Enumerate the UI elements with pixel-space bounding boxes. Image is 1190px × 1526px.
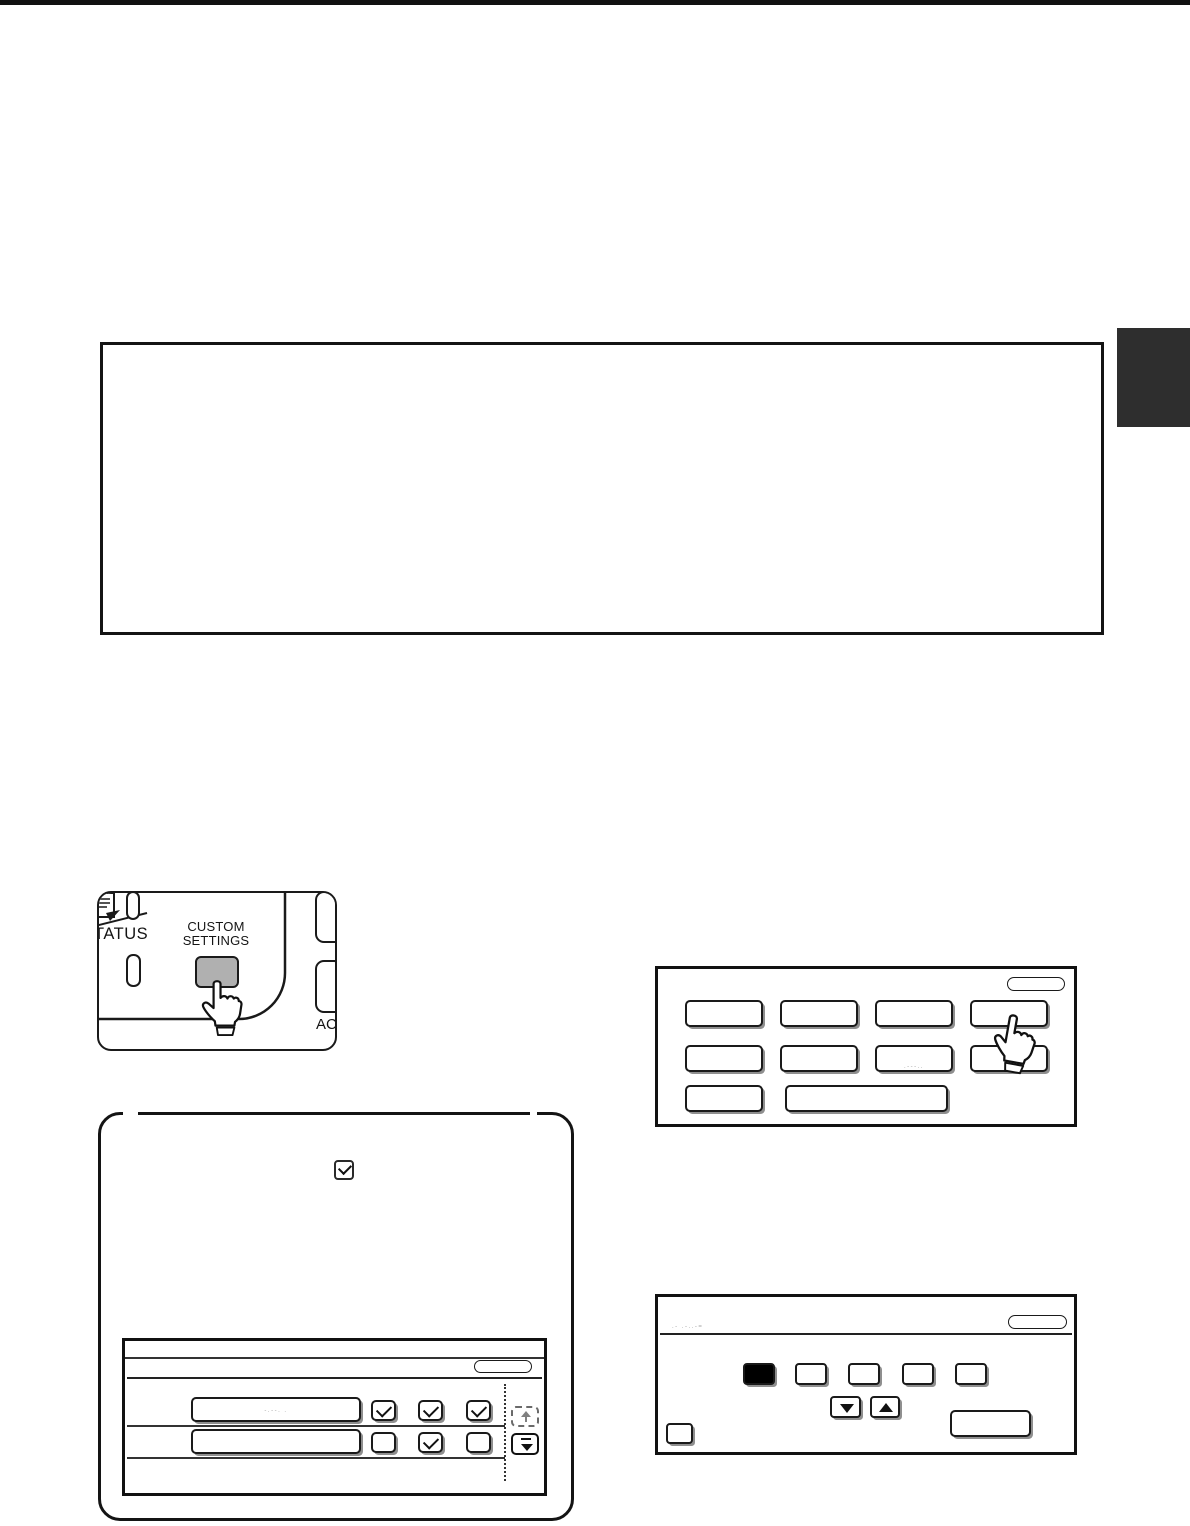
status-indicator-key bbox=[126, 954, 141, 987]
row2-checkbox-2 bbox=[418, 1432, 443, 1453]
menu-button-2 bbox=[780, 1000, 858, 1027]
down-arrow-icon bbox=[521, 1438, 531, 1440]
row2-checkbox-1 bbox=[371, 1432, 396, 1453]
panel-right-key-2 bbox=[315, 960, 337, 1013]
up-triangle-icon bbox=[879, 1403, 893, 1412]
control-panel-illustration: TATUS CUSTOM SETTINGS AC bbox=[97, 891, 337, 1051]
up-arrow-icon bbox=[525, 1417, 527, 1422]
job-status-label-partial: TATUS bbox=[97, 925, 148, 944]
setting-row2-button bbox=[191, 1429, 361, 1454]
scroll-down-button bbox=[511, 1433, 539, 1455]
border-notch bbox=[530, 1111, 537, 1117]
screen-ok-button bbox=[1008, 1315, 1067, 1329]
border-notch bbox=[123, 1111, 138, 1117]
document-output-icon bbox=[99, 893, 120, 921]
confirm-button bbox=[950, 1410, 1031, 1437]
page-top-edge bbox=[0, 0, 1190, 5]
menu-button-3 bbox=[875, 1000, 953, 1027]
down-arrow-icon bbox=[521, 1444, 533, 1451]
setting-row1-button: -.--. . bbox=[191, 1397, 361, 1422]
row1-checkbox-2 bbox=[418, 1400, 443, 1421]
note-screen-mockup: -.--. . bbox=[122, 1338, 547, 1496]
pointing-hand-icon bbox=[978, 1009, 1042, 1077]
pointing-hand-icon bbox=[192, 979, 244, 1037]
checkmark-icon bbox=[423, 1433, 439, 1449]
row2-checkbox-3 bbox=[466, 1432, 491, 1453]
touchscreen-menu-mockup: .---.. bbox=[655, 966, 1077, 1127]
row1-checkbox-3 bbox=[466, 1400, 491, 1421]
custom-settings-label-line1: CUSTOM bbox=[163, 920, 269, 934]
scroll-up-button bbox=[511, 1406, 539, 1427]
menu-button-9 bbox=[685, 1085, 763, 1112]
screen-header-rule bbox=[127, 1377, 542, 1379]
row-divider bbox=[127, 1425, 505, 1427]
checkmark-icon bbox=[376, 1401, 392, 1417]
illegible-text: -.--. . bbox=[193, 1408, 359, 1414]
row1-checkbox-1 bbox=[371, 1400, 396, 1421]
touchscreen-tabs-mockup: .- .-..-= bbox=[655, 1294, 1077, 1455]
panel-right-key-1 bbox=[315, 891, 337, 943]
illegible-text: .---.. bbox=[877, 1064, 951, 1070]
previous-button bbox=[830, 1396, 861, 1418]
screen-ok-button bbox=[474, 1360, 532, 1373]
row-divider bbox=[127, 1457, 505, 1459]
screen-header-top-line bbox=[125, 1357, 544, 1359]
job-status-key bbox=[126, 891, 140, 920]
menu-button-wide bbox=[785, 1085, 948, 1112]
manual-page: TATUS CUSTOM SETTINGS AC bbox=[0, 0, 1190, 1526]
empty-note-frame bbox=[100, 342, 1104, 635]
corner-small-button bbox=[666, 1423, 693, 1444]
illegible-header-text: .- .-..-= bbox=[672, 1324, 752, 1330]
checkmark-icon bbox=[471, 1401, 487, 1417]
tab-button-5 bbox=[955, 1363, 987, 1385]
custom-settings-label-line2: SETTINGS bbox=[163, 934, 269, 948]
tab-button-3 bbox=[848, 1363, 880, 1385]
chapter-tab bbox=[1117, 328, 1190, 427]
menu-button-6 bbox=[780, 1045, 858, 1072]
menu-button-7: .---.. bbox=[875, 1045, 953, 1072]
tab-button-4 bbox=[902, 1363, 934, 1385]
scroll-area-divider bbox=[504, 1384, 506, 1481]
checkbox-checked-icon bbox=[334, 1160, 354, 1180]
down-triangle-icon bbox=[840, 1404, 854, 1413]
note-callout-box: -.--. . bbox=[98, 1112, 574, 1521]
menu-button-5 bbox=[685, 1045, 763, 1072]
checkmark-icon bbox=[338, 1161, 352, 1175]
ac-label-partial: AC bbox=[316, 1016, 337, 1033]
next-button bbox=[870, 1396, 900, 1418]
checkmark-icon bbox=[423, 1401, 439, 1417]
tab-button-2 bbox=[795, 1363, 827, 1385]
screen-header-rule bbox=[660, 1333, 1072, 1335]
custom-settings-label: CUSTOM SETTINGS bbox=[163, 920, 269, 948]
tab-button-1-selected bbox=[743, 1363, 775, 1385]
screen-exit-button bbox=[1007, 977, 1065, 991]
menu-button-1 bbox=[685, 1000, 763, 1027]
